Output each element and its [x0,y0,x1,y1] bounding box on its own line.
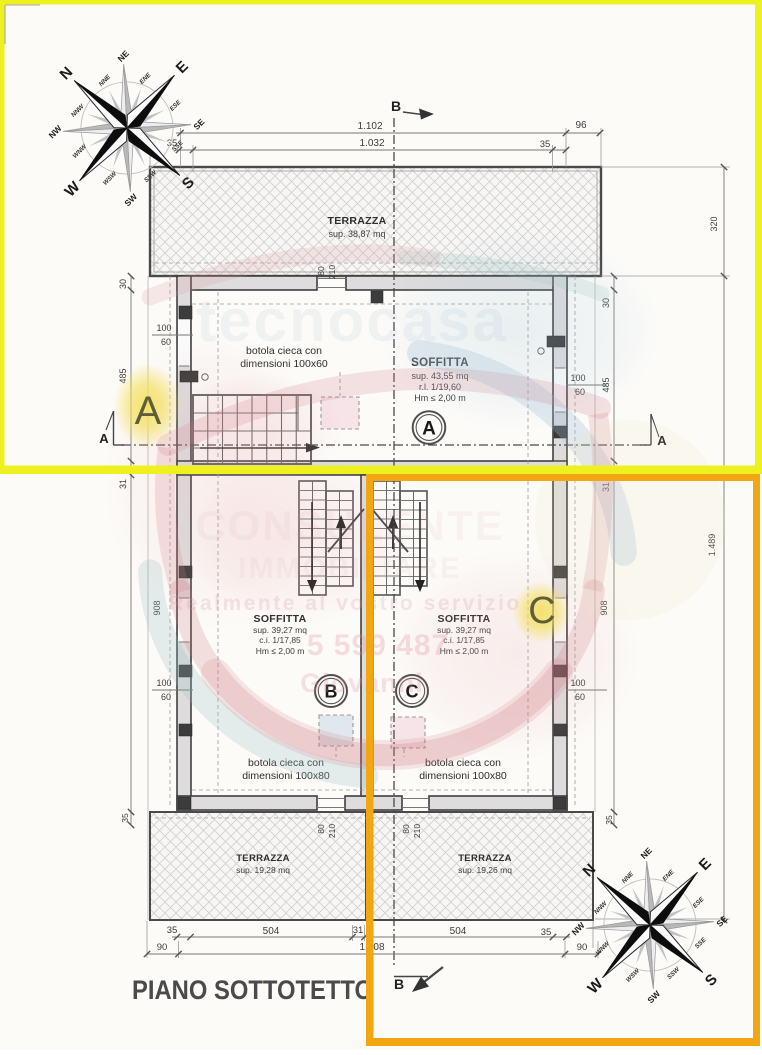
svg-text:Realmente al vostro servizio: Realmente al vostro servizio [168,592,522,615]
svg-text:210: 210 [327,265,337,279]
svg-text:35: 35 [540,139,551,150]
svg-text:PIANO SOTTOTETTO: PIANO SOTTOTETTO [132,975,373,1005]
svg-text:5 599 487: 5 599 487 [307,629,449,662]
svg-text:A: A [99,431,109,446]
svg-text:504: 504 [263,926,280,937]
svg-text:Hm ≤ 2,00 m: Hm ≤ 2,00 m [256,646,305,656]
svg-text:96: 96 [575,120,587,131]
svg-text:Giovanni: Giovanni [300,668,424,698]
svg-text:80: 80 [401,824,411,834]
svg-text:320: 320 [709,216,719,231]
svg-text:210: 210 [412,824,422,838]
svg-text:IMMOBILIARE: IMMOBILIARE [238,552,462,585]
svg-text:TERRAZZA: TERRAZZA [328,215,387,227]
svg-text:sup. 38,87 mq: sup. 38,87 mq [328,229,385,239]
svg-text:CONSULENTE: CONSULENTE [195,502,504,549]
svg-text:c.i. 1/17,85: c.i. 1/17,85 [259,635,301,645]
svg-text:1.102: 1.102 [357,121,382,132]
svg-text:504: 504 [450,926,467,937]
svg-text:80: 80 [316,266,326,276]
svg-text:35: 35 [604,815,614,825]
svg-text:100: 100 [156,323,171,333]
svg-text:35: 35 [167,925,178,936]
svg-text:35: 35 [541,927,552,938]
svg-text:35: 35 [120,813,130,823]
svg-text:TERRAZZA: TERRAZZA [458,853,512,864]
svg-text:30: 30 [118,279,128,289]
svg-text:1.032: 1.032 [359,138,384,149]
svg-text:sup. 39,27 mq: sup. 39,27 mq [253,625,307,635]
svg-text:100: 100 [156,678,171,688]
svg-text:tecnocasa: tecnocasa [196,287,508,354]
svg-text:31: 31 [353,925,364,936]
svg-text:sup. 19,26 mq: sup. 19,26 mq [458,865,512,875]
svg-text:dimensioni 100x80: dimensioni 100x80 [419,770,507,782]
svg-text:80: 80 [316,824,326,834]
svg-text:B: B [391,98,401,114]
svg-text:C: C [528,590,555,632]
svg-text:A: A [135,389,162,433]
svg-text:B: B [394,976,404,992]
svg-text:TERRAZZA: TERRAZZA [236,853,290,864]
svg-text:90: 90 [157,942,168,953]
svg-text:90: 90 [577,942,588,953]
svg-text:60: 60 [161,692,171,702]
svg-text:210: 210 [327,824,337,838]
svg-text:sup. 19,28 mq: sup. 19,28 mq [236,865,290,875]
svg-text:A: A [422,419,436,440]
